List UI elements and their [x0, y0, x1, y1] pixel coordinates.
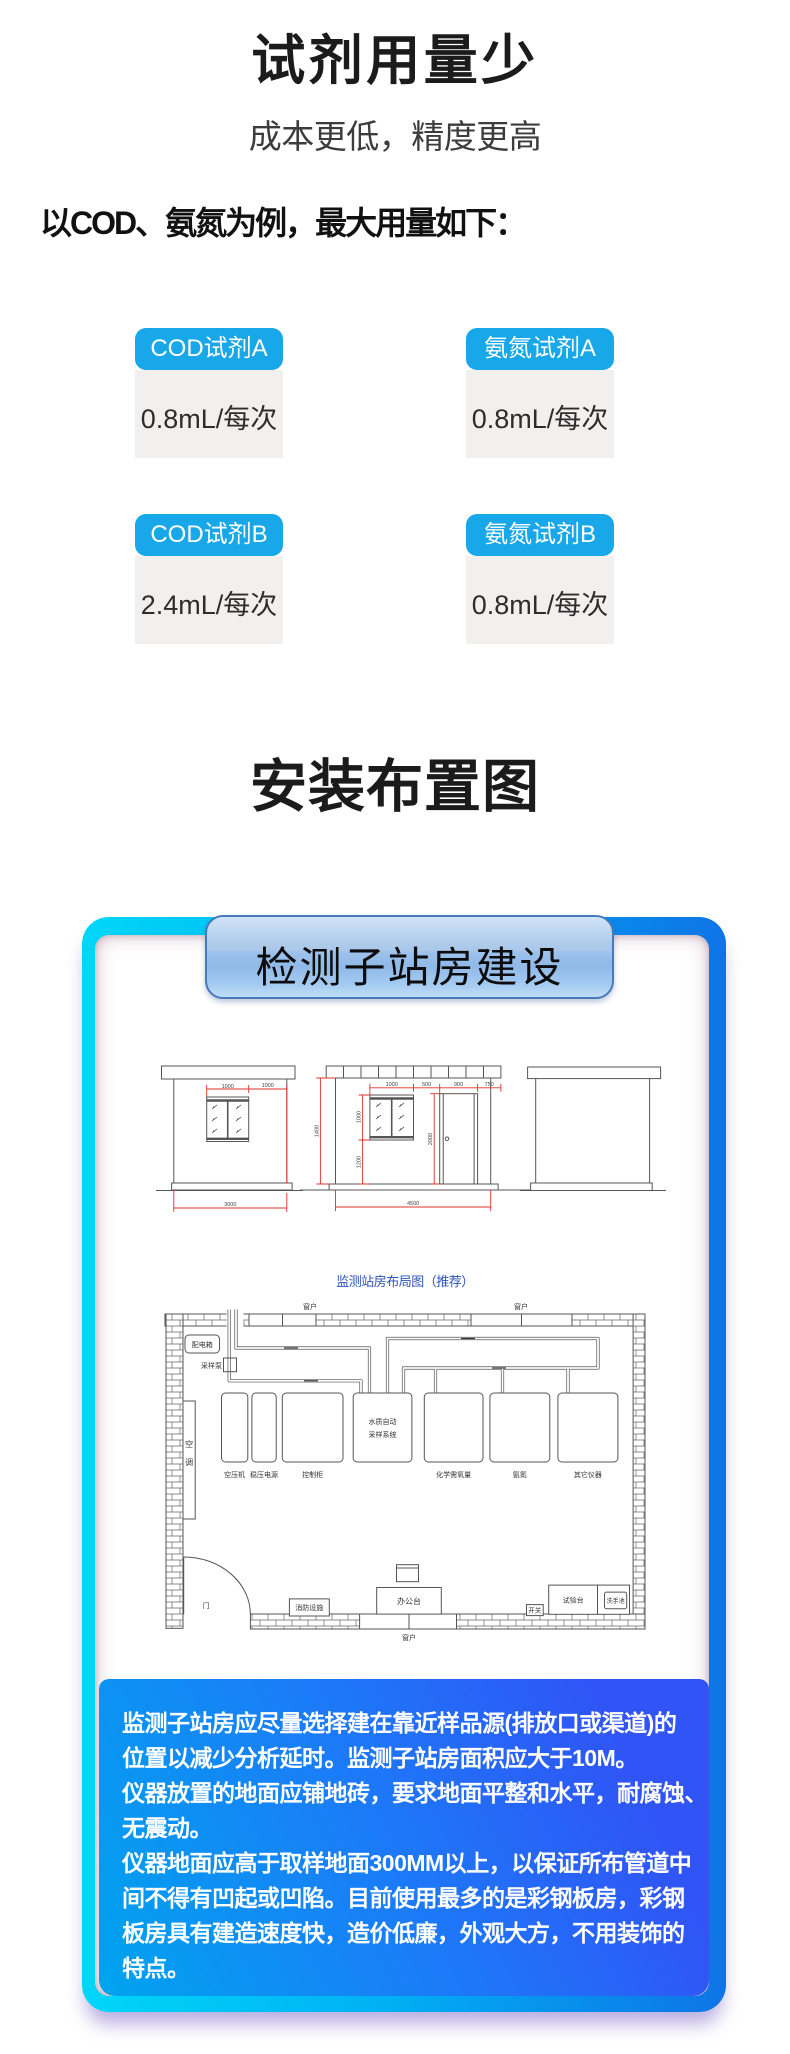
svg-text:洗手池: 洗手池	[607, 1597, 625, 1605]
svg-text:空压机: 空压机	[224, 1470, 245, 1479]
svg-text:门: 门	[203, 1601, 210, 1610]
svg-text:1000: 1000	[386, 1082, 398, 1088]
svg-text:办公台: 办公台	[397, 1596, 421, 1606]
svg-text:其它仪器: 其它仪器	[574, 1470, 602, 1479]
svg-text:控制柜: 控制柜	[302, 1470, 323, 1479]
svg-text:750: 750	[485, 1082, 494, 1088]
svg-text:1000: 1000	[357, 1111, 363, 1123]
svg-text:稳压电源: 稳压电源	[250, 1470, 278, 1479]
svg-text:4500: 4500	[407, 1201, 419, 1207]
svg-text:窗户: 窗户	[402, 1633, 416, 1642]
svg-text:2000: 2000	[428, 1133, 434, 1145]
svg-text:空: 空	[185, 1439, 193, 1449]
svg-text:配电箱: 配电箱	[192, 1340, 213, 1349]
svg-text:开关: 开关	[528, 1606, 542, 1615]
svg-text:500: 500	[422, 1082, 431, 1088]
svg-text:化学需氧量: 化学需氧量	[436, 1470, 471, 1479]
svg-text:窗户: 窗户	[303, 1302, 317, 1311]
svg-text:消防设施: 消防设施	[295, 1603, 323, 1612]
svg-text:1000: 1000	[262, 1083, 274, 1089]
svg-text:1000: 1000	[222, 1084, 234, 1090]
svg-text:水质自动: 水质自动	[369, 1417, 397, 1426]
svg-text:调: 调	[185, 1458, 193, 1467]
svg-text:采样泵: 采样泵	[201, 1361, 222, 1370]
svg-text:1200: 1200	[357, 1156, 363, 1168]
svg-text:900: 900	[454, 1082, 463, 1088]
svg-text:3000: 3000	[224, 1202, 236, 1208]
svg-text:1400: 1400	[314, 1125, 320, 1137]
svg-text:试验台: 试验台	[563, 1596, 584, 1605]
svg-text:采样系统: 采样系统	[369, 1430, 397, 1439]
svg-text:氨氮: 氨氮	[513, 1470, 527, 1479]
svg-text:窗户: 窗户	[514, 1302, 528, 1311]
